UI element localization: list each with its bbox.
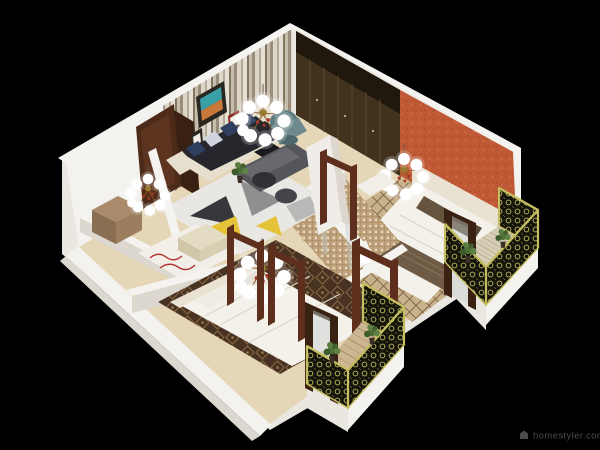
render-canvas: homestyler.com bbox=[0, 0, 600, 450]
watermark-text: homestyler.com bbox=[533, 431, 600, 442]
dining-chair bbox=[252, 172, 276, 188]
floorplan-3d-render: homestyler.com bbox=[0, 0, 600, 450]
dining-chair bbox=[275, 189, 297, 204]
